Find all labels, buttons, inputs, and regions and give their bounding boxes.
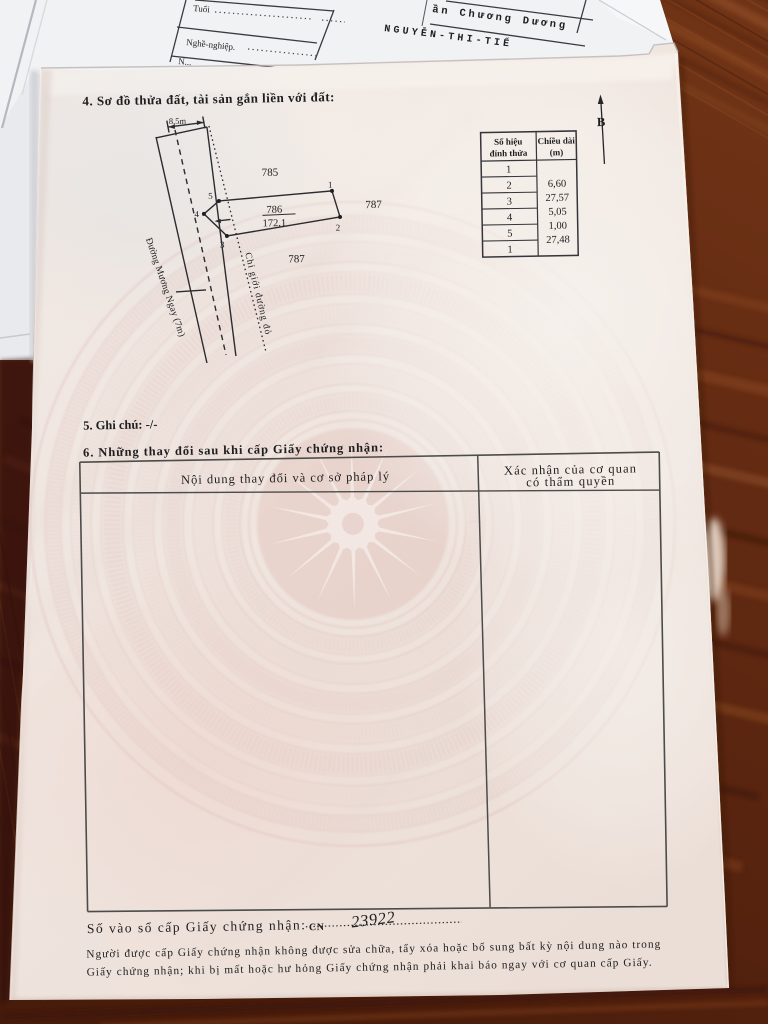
svg-text:1: 1: [507, 245, 512, 256]
svg-text:3: 3: [220, 240, 225, 250]
svg-text:Số hiệu: Số hiệu: [494, 136, 522, 146]
svg-text:1: 1: [506, 165, 511, 176]
svg-text:8,5m: 8,5m: [169, 116, 187, 126]
svg-text:5,05: 5,05: [548, 207, 567, 218]
svg-text:(m): (m): [550, 147, 564, 157]
svg-text:4: 4: [194, 209, 199, 219]
svg-text:Chiều dài: Chiều dài: [538, 135, 576, 146]
svg-text:2: 2: [506, 181, 511, 192]
svg-text:B: B: [597, 115, 606, 129]
svg-text:5: 5: [208, 191, 213, 201]
svg-text:4: 4: [507, 213, 513, 224]
svg-text:1,00: 1,00: [548, 221, 567, 232]
svg-text:172,1: 172,1: [263, 218, 287, 229]
svg-text:2: 2: [336, 223, 341, 233]
svg-text:5: 5: [507, 229, 512, 240]
svg-text:Tuổi: Tuổi: [193, 3, 211, 14]
svg-text:785: 785: [262, 167, 279, 179]
svg-text:3: 3: [507, 197, 512, 208]
svg-text:5. Ghi chú: -/-: 5. Ghi chú: -/-: [83, 417, 158, 432]
svg-text:787: 787: [365, 199, 382, 211]
svg-text:đỉnh thửa: đỉnh thửa: [490, 148, 528, 159]
svg-text:787: 787: [288, 253, 305, 265]
svg-text:6,60: 6,60: [548, 179, 567, 190]
svg-text:27,57: 27,57: [545, 193, 569, 204]
svg-text:27,48: 27,48: [546, 235, 570, 246]
svg-text:CN: CN: [309, 922, 325, 933]
svg-text:1: 1: [328, 180, 333, 190]
